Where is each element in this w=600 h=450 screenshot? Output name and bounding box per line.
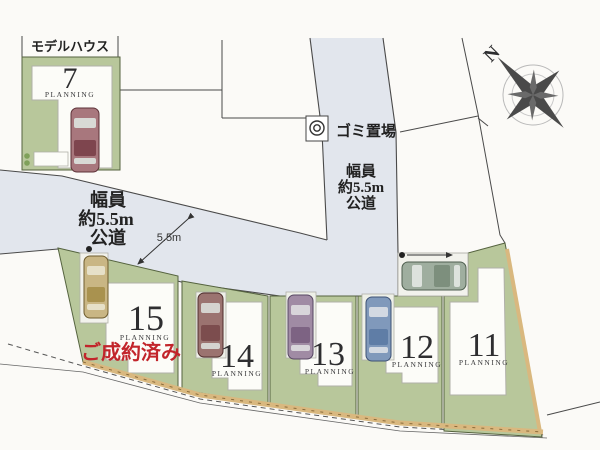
north-label: N (480, 42, 505, 67)
bush-icon (24, 160, 30, 166)
model-house-label: モデルハウス (31, 39, 109, 54)
survey-point-icon (399, 252, 405, 258)
svg-text:約5.5m: 約5.5m (78, 208, 134, 229)
bush-icon (24, 153, 30, 159)
svg-text:公道: 公道 (90, 227, 126, 248)
lot-15-number: 15 (128, 298, 164, 338)
svg-text:幅員: 幅員 (90, 189, 126, 210)
car-icon-parked (402, 262, 466, 290)
road-side-parking-pad (398, 252, 468, 296)
road-width-dimension-label: 5.5m (157, 232, 181, 244)
lot-15-planning-label: PLANNING (120, 333, 170, 342)
site-plan-map: モデルハウス 7 PLANNING ゴミ置場 幅員 約5.5m 公道 幅員 約5… (0, 0, 600, 450)
sold-status-label: ご成約済み (81, 340, 181, 364)
svg-text:公道: 公道 (346, 194, 376, 212)
svg-text:約5.5m: 約5.5m (338, 178, 385, 196)
lot-14-planning-label: PLANNING (212, 369, 262, 378)
lot-11-planning-label: PLANNING (459, 358, 509, 367)
svg-text:幅員: 幅員 (346, 162, 376, 180)
car-icon-lot13 (288, 295, 313, 359)
lot-7-shed (34, 152, 68, 166)
car-icon-lot15 (84, 256, 108, 318)
lot-7-planning-label: PLANNING (45, 90, 95, 99)
lot-13-planning-label: PLANNING (305, 367, 355, 376)
lot-12-planning-label: PLANNING (392, 360, 442, 369)
garbage-station-label: ゴミ置場 (336, 122, 396, 140)
garbage-station-icon (306, 116, 328, 141)
car-icon-lot12 (366, 297, 391, 361)
car-icon-lot7 (71, 108, 99, 172)
